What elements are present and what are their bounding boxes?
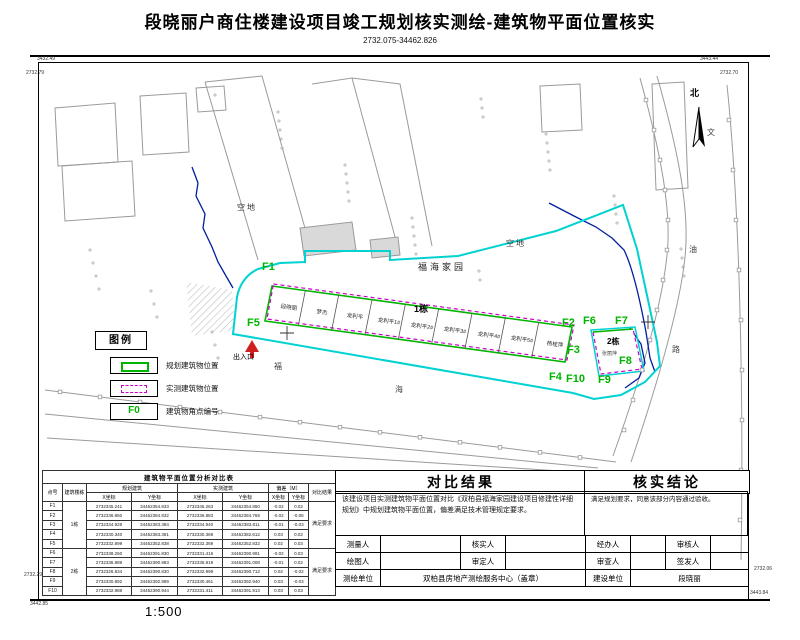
analysis-cell: 34462390.983 <box>132 558 178 567</box>
analysis-cell: 2732330.340 <box>87 530 132 539</box>
legend-label-measured: 实测建筑物位置 <box>166 383 219 394</box>
col-y2: Y坐标 <box>223 493 269 502</box>
analysis-cell: 34462354.850 <box>223 502 269 511</box>
signoff-value <box>631 536 666 553</box>
analysis-cell: 0.02 <box>289 502 309 511</box>
analysis-cell: 0.02 <box>289 558 309 567</box>
col-point: 点号 <box>43 484 63 502</box>
analysis-cell: 0.02 <box>269 567 289 576</box>
analysis-cell: 2732338.260 <box>87 548 132 557</box>
analysis-cell: 34462391.830 <box>132 548 178 557</box>
analysis-cell: 2732331.411 <box>178 586 223 595</box>
building2-owner: 张丽萍 <box>602 350 617 357</box>
analysis-cell: 34462352.838 <box>132 539 178 548</box>
analysis-cell: 1栋 <box>63 502 87 549</box>
legend-symbol-planned <box>110 357 158 374</box>
analysis-cell: F9 <box>43 577 63 586</box>
analysis-cell: 0.03 <box>289 539 309 548</box>
analysis-cell: 2732336.989 <box>87 558 132 567</box>
grid-label-bl-a: 2732.29 <box>24 572 42 578</box>
analysis-cell: 2732334.940 <box>178 520 223 529</box>
analysis-cell: 34462390.944 <box>132 586 178 595</box>
unit-name-label: 梦杰 <box>316 307 328 316</box>
analysis-cell: 2732345.241 <box>87 502 132 511</box>
col-result: 对比结果 <box>309 484 336 502</box>
analysis-cell: 34462352.832 <box>223 539 269 548</box>
signoff-label: 经办人 <box>586 536 631 553</box>
analysis-cell: -0.02 <box>269 502 289 511</box>
analysis-cell: 满足要求 <box>309 548 336 595</box>
comparison-text: 该建设项目实测建筑物平面位置对比《双柏县福海家园建设项目修建性详细规划》中规划建… <box>335 491 585 536</box>
corner-point-F8: F8 <box>619 355 632 367</box>
builder-label: 建设单位 <box>586 570 631 587</box>
signoff-table: 测量人核实人经办人审核人绘图人审定人审查人签发人测绘单位双柏县房地产测绘服务中心… <box>335 535 749 587</box>
analysis-cell: F2 <box>43 511 63 520</box>
analysis-cell: F7 <box>43 558 63 567</box>
analysis-row: F52732332.89934462352.8382732332.3693446… <box>43 539 336 548</box>
legend-symbol-measured <box>110 380 158 397</box>
analysis-cell: 2732345.263 <box>178 502 223 511</box>
building2-name: 2栋 <box>607 336 619 347</box>
road-char-fu: 福 <box>274 361 282 372</box>
grid-label-tl-a: 3432.49 <box>37 56 55 62</box>
col-x3: X坐标 <box>269 493 289 502</box>
analysis-cell: 2732326.834 <box>87 567 132 576</box>
analysis-cell: 2732334.928 <box>87 520 132 529</box>
grid-label-br-a: 2732.06 <box>754 566 772 572</box>
analysis-cell: 2732332.999 <box>178 567 223 576</box>
point-code-icon: F0 <box>111 405 157 416</box>
col-y1: Y坐标 <box>132 493 178 502</box>
analysis-row: F42732330.34034462383.3812732330.3693446… <box>43 530 336 539</box>
unit-name-label: 杨桂萍 <box>547 339 564 349</box>
signoff-row: 测绘单位双柏县房地产测绘服务中心（盖章）建设单位段晓丽 <box>336 570 749 587</box>
analysis-cell: 2732330.892 <box>87 577 132 586</box>
grid-label-br-b: 3443.84 <box>750 590 768 596</box>
signoff-value <box>381 536 461 553</box>
corner-point-F1: F1 <box>262 261 275 273</box>
analysis-cell: 2栋 <box>63 548 87 595</box>
corner-point-F9: F9 <box>598 374 611 386</box>
analysis-cell: 2732336.883 <box>178 511 223 520</box>
analysis-cell: -0.02 <box>289 567 309 576</box>
road-char-lu: 路 <box>672 344 680 355</box>
signoff-value <box>506 553 586 570</box>
page-title: 段晓丽户商住楼建设项目竣工规划核实测绘-建筑物平面位置核实 <box>0 8 800 33</box>
corner-point-F5: F5 <box>247 317 260 329</box>
corner-point-F7: F7 <box>615 315 628 327</box>
analysis-cell: 34462391.913 <box>223 586 269 595</box>
analysis-cell: 2732330.461 <box>178 577 223 586</box>
col-deviation: 偏差（M） <box>269 484 309 493</box>
analysis-cell: 满足要求 <box>309 502 336 549</box>
analysis-cell: 2732336.919 <box>178 558 223 567</box>
north-label: 北 <box>690 86 699 99</box>
corner-point-F10: F10 <box>566 373 585 385</box>
analysis-cell: F10 <box>43 586 63 595</box>
col-measured: 实测建筑 <box>178 484 269 493</box>
analysis-cell: 2732332.988 <box>87 586 132 595</box>
analysis-cell: 34462390.991 <box>223 548 269 557</box>
analysis-cell: 2732330.369 <box>178 530 223 539</box>
analysis-cell: -0.03 <box>289 520 309 529</box>
corner-point-F4: F4 <box>549 371 562 383</box>
signoff-value <box>711 536 749 553</box>
analysis-cell: 34462392.940 <box>223 577 269 586</box>
grid-label-tl-b: 2732.79 <box>26 70 44 76</box>
analysis-cell: 2732336.850 <box>87 511 132 520</box>
analysis-cell: 34462392.989 <box>132 577 178 586</box>
col-planned: 规划建筑 <box>87 484 178 493</box>
building1-name: 1栋 <box>414 302 428 315</box>
analysis-cell: F6 <box>43 548 63 557</box>
col-x1: X坐标 <box>87 493 132 502</box>
analysis-cell: 34462383.384 <box>132 520 178 529</box>
signoff-label: 审定人 <box>461 553 506 570</box>
analysis-cell: 0.02 <box>289 530 309 539</box>
analysis-cell: -0.01 <box>269 558 289 567</box>
analysis-cell: 2732332.899 <box>87 539 132 548</box>
col-x2: X坐标 <box>178 493 223 502</box>
analysis-cell: -0.02 <box>269 548 289 557</box>
org-label: 测绘单位 <box>336 570 381 587</box>
grid-label-tr-b: 2732.70 <box>720 70 738 76</box>
analysis-row: F82732326.83434462390.8302732332.9993446… <box>43 567 336 576</box>
analysis-cell: -0.03 <box>289 577 309 586</box>
analysis-cell: -0.02 <box>269 511 289 520</box>
analysis-cell: 0.03 <box>269 586 289 595</box>
analysis-cell: 34462382.612 <box>223 530 269 539</box>
signoff-label: 签发人 <box>666 553 711 570</box>
road-char-you: 油 <box>689 244 697 255</box>
col-building: 建筑楼栋 <box>63 484 87 502</box>
analysis-row: F62栋2732338.26034462391.8302732331.41634… <box>43 548 336 557</box>
signoff-row: 绘图人审定人审查人签发人 <box>336 553 749 570</box>
signoff-row: 测量人核实人经办人审核人 <box>336 536 749 553</box>
analysis-cell: F3 <box>43 520 63 529</box>
analysis-cell: F4 <box>43 530 63 539</box>
analysis-row: F92732330.89234462392.9892732330.4613446… <box>43 577 336 586</box>
analysis-cell: 2732331.416 <box>178 548 223 557</box>
corner-point-F2: F2 <box>562 317 575 329</box>
signoff-value <box>381 553 461 570</box>
top-rule <box>30 55 770 57</box>
analysis-row: F11栋2732345.24134462354.8332732345.26334… <box>43 502 336 511</box>
analysis-row: F22732336.85034462384.8322732336.8833446… <box>43 511 336 520</box>
analysis-cell: F8 <box>43 567 63 576</box>
grid-label-bl-b: 3442.85 <box>30 601 48 607</box>
conclusion-text: 满足规划要求，同意该部分内容通过验收。 <box>584 491 748 536</box>
legend-label-planned: 规划建筑物位置 <box>166 360 219 371</box>
scale-label: 1:500 <box>145 604 183 619</box>
analysis-cell: 0.03 <box>269 530 289 539</box>
analysis-cell: 34462384.769 <box>223 511 269 520</box>
vacant-label-2: 空地 <box>506 238 526 249</box>
analysis-table-body: F11栋2732345.24134462354.8332732345.26334… <box>43 502 336 596</box>
analysis-row: F102732332.98834462390.9442732331.411344… <box>43 586 336 595</box>
corner-point-F3: F3 <box>567 344 580 356</box>
analysis-cell: 34462383.381 <box>132 530 178 539</box>
page-subtitle: 2732.075-34462.826 <box>0 36 800 45</box>
analysis-table-title: 建筑物平面位置分析对比表 <box>43 471 336 484</box>
analysis-cell: 0.03 <box>289 548 309 557</box>
planned-rect-icon <box>121 362 149 372</box>
analysis-cell: 34462391.008 <box>223 558 269 567</box>
measured-rect-icon <box>121 385 147 393</box>
analysis-cell: F1 <box>43 502 63 511</box>
analysis-cell: 34462384.832 <box>132 511 178 520</box>
analysis-cell: 34462390.712 <box>223 567 269 576</box>
analysis-cell: 0.03 <box>289 586 309 595</box>
signoff-value <box>506 536 586 553</box>
org-value: 双柏县房地产测绘服务中心（盖章） <box>381 570 586 587</box>
corner-point-F6: F6 <box>583 315 596 327</box>
builder-value: 段晓丽 <box>631 570 749 587</box>
analysis-cell: 0.02 <box>269 539 289 548</box>
analysis-row: F72732336.98934462390.9832732336.9193446… <box>43 558 336 567</box>
analysis-cell: 0.03 <box>269 577 289 586</box>
legend-label-point: 建筑物角点编号 <box>166 406 219 417</box>
signoff-label: 核实人 <box>461 536 506 553</box>
signoff-label: 审查人 <box>586 553 631 570</box>
drawing-sheet: 段晓丽户商住楼建设项目竣工规划核实测绘-建筑物平面位置核实 2732.075-3… <box>0 0 800 640</box>
road-char-wen: 文 <box>707 127 715 138</box>
col-y3: Y坐标 <box>289 493 309 502</box>
analysis-cell: F5 <box>43 539 63 548</box>
signoff-label: 审核人 <box>666 536 711 553</box>
analysis-table: 建筑物平面位置分析对比表 点号 建筑楼栋 规划建筑 实测建筑 偏差（M） 对比结… <box>42 470 336 596</box>
analysis-cell: 34462354.833 <box>132 502 178 511</box>
legend-symbol-point: F0 <box>110 403 158 420</box>
vacant-label-1: 空地 <box>237 202 257 213</box>
signoff-value <box>631 553 666 570</box>
road-char-hai: 海 <box>395 384 403 395</box>
grid-label-tr-a: 3443.44 <box>700 56 718 62</box>
analysis-row: F32732334.92834462383.3842732334.9403446… <box>43 520 336 529</box>
site-name-label: 福海家园 <box>418 260 466 273</box>
signoff-label: 绘图人 <box>336 553 381 570</box>
signoff-label: 测量人 <box>336 536 381 553</box>
analysis-cell: 2732332.369 <box>178 539 223 548</box>
analysis-cell: 34462390.830 <box>132 567 178 576</box>
signoff-value <box>711 553 749 570</box>
legend-title: 图例 <box>95 331 147 350</box>
analysis-cell: -0.01 <box>269 520 289 529</box>
analysis-cell: -0.06 <box>289 511 309 520</box>
analysis-cell: 34462383.811 <box>223 520 269 529</box>
entrance-label: 出入口 <box>233 352 254 362</box>
